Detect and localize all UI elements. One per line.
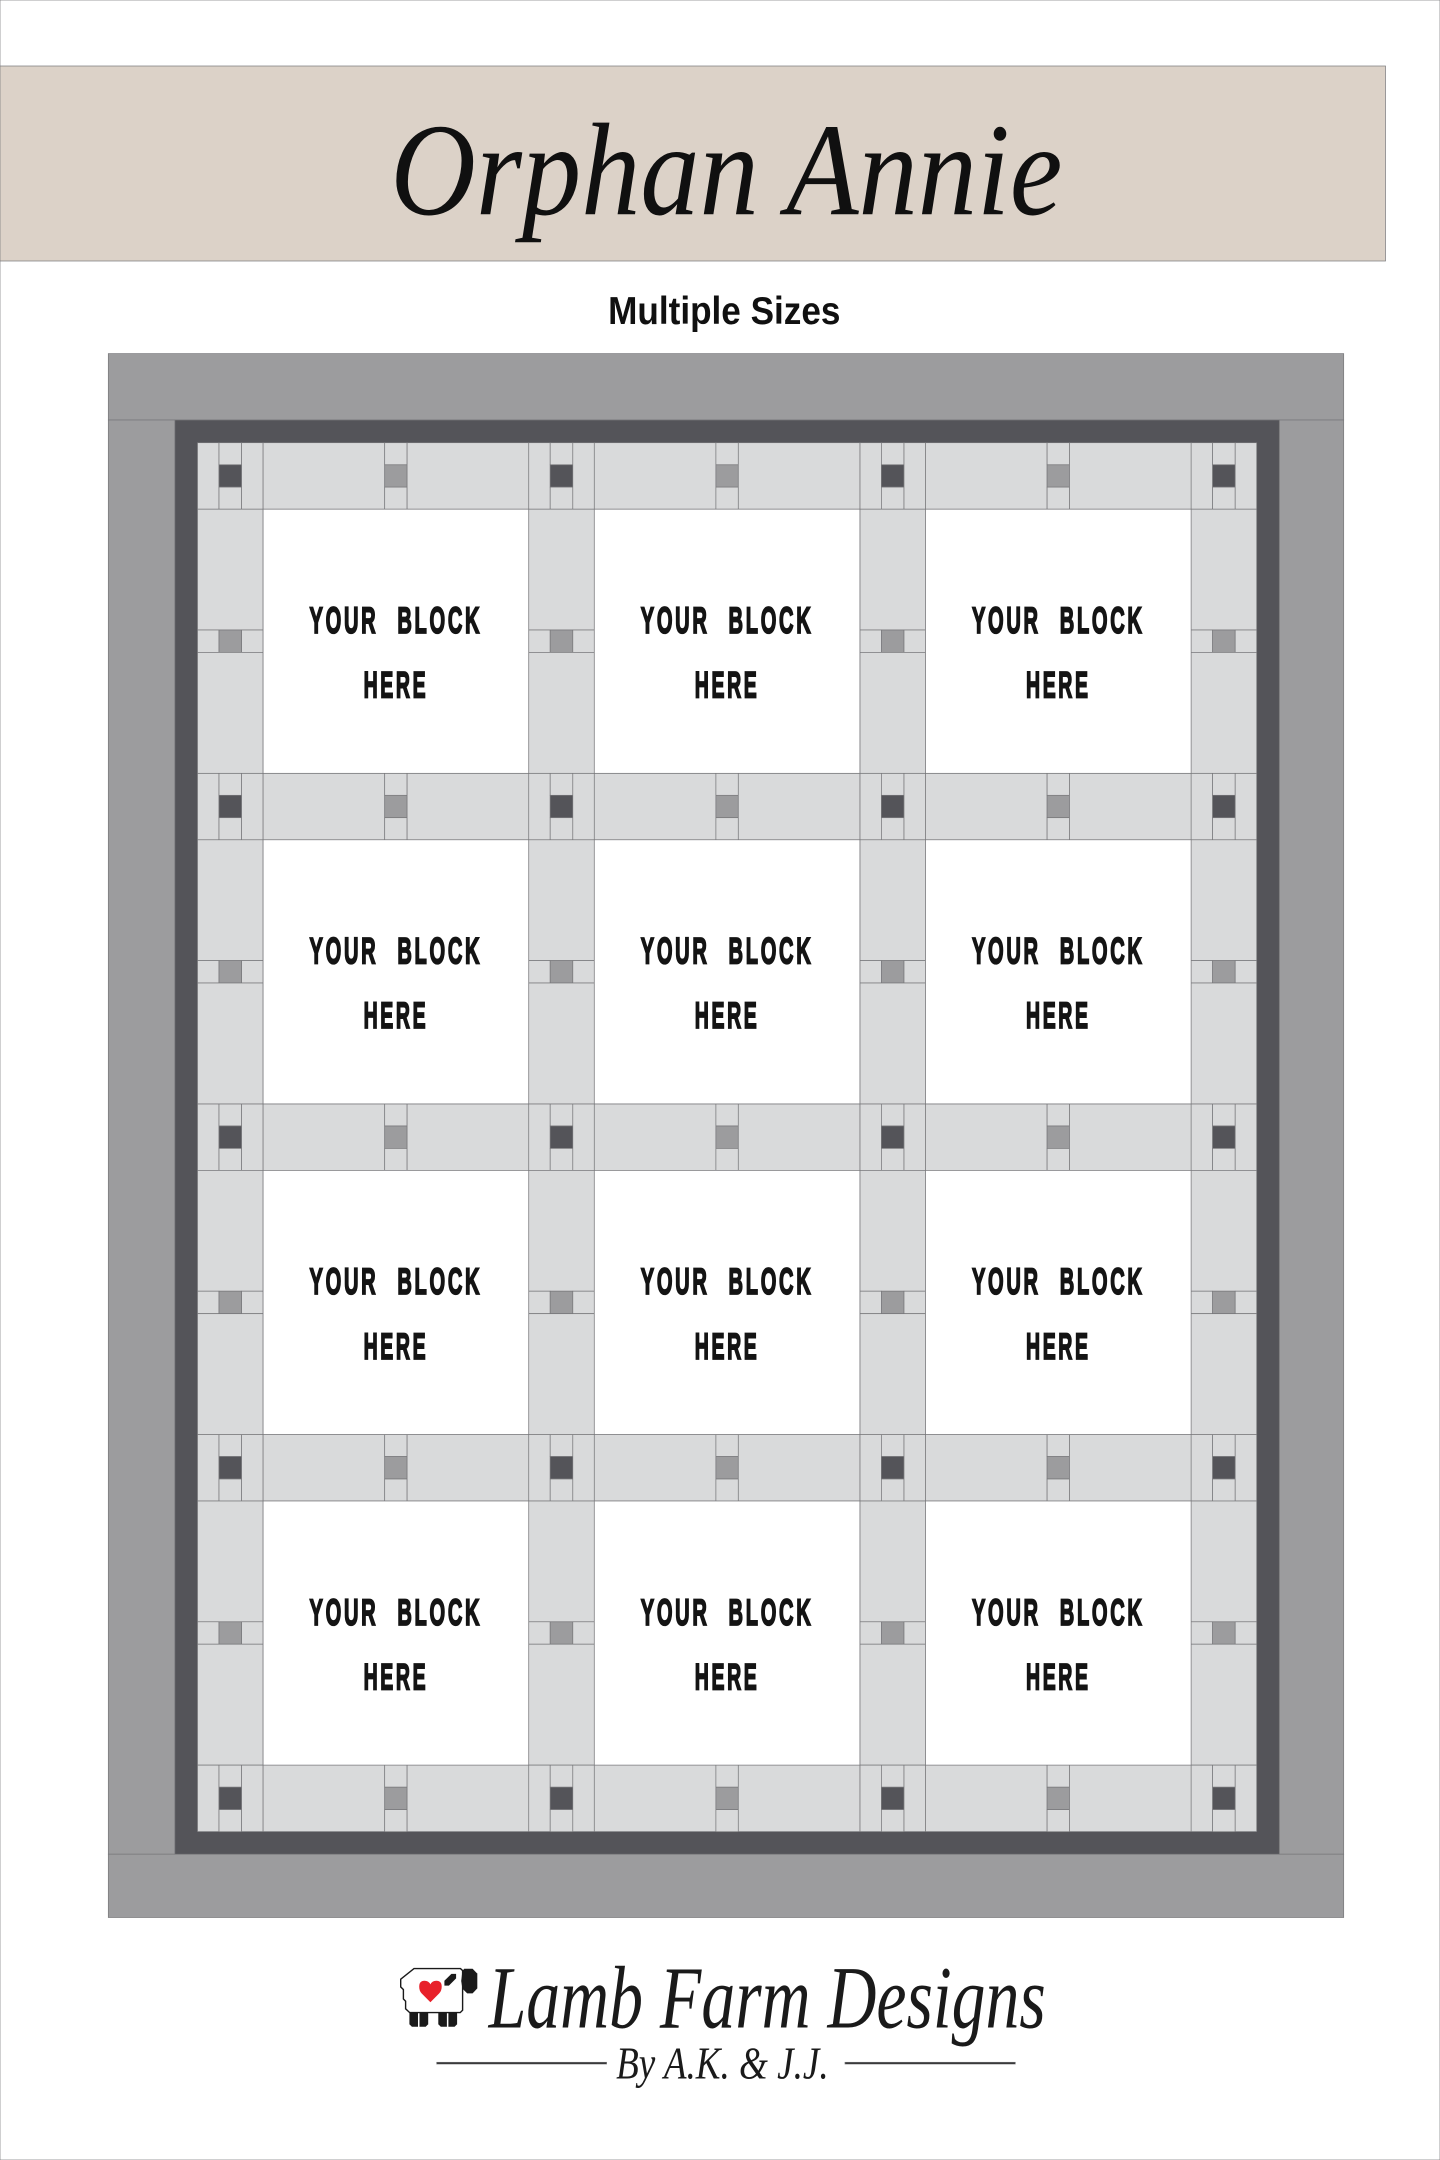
svg-text:YOUR BLOCK: YOUR BLOCK (310, 930, 483, 972)
svg-text:YOUR BLOCK: YOUR BLOCK (641, 1591, 814, 1633)
svg-text:Orphan Annie: Orphan Annie (390, 96, 1062, 243)
svg-text:HERE: HERE (695, 994, 760, 1036)
svg-text:HERE: HERE (1026, 1655, 1091, 1697)
svg-text:HERE: HERE (695, 1655, 760, 1697)
svg-text:YOUR BLOCK: YOUR BLOCK (972, 599, 1145, 641)
svg-text:YOUR BLOCK: YOUR BLOCK (310, 599, 483, 641)
svg-text:HERE: HERE (1026, 994, 1091, 1036)
svg-text:Multiple Sizes: Multiple Sizes (608, 290, 840, 333)
svg-text:YOUR BLOCK: YOUR BLOCK (972, 930, 1145, 972)
svg-text:HERE: HERE (695, 664, 760, 706)
svg-text:YOUR BLOCK: YOUR BLOCK (972, 1260, 1145, 1302)
svg-text:YOUR BLOCK: YOUR BLOCK (972, 1591, 1145, 1633)
svg-text:By A.K. & J.J.: By A.K. & J.J. (616, 2037, 829, 2088)
svg-text:HERE: HERE (364, 1325, 429, 1367)
svg-text:YOUR BLOCK: YOUR BLOCK (310, 1591, 483, 1633)
svg-text:HERE: HERE (364, 994, 429, 1036)
svg-text:YOUR BLOCK: YOUR BLOCK (641, 930, 814, 972)
svg-text:HERE: HERE (1026, 664, 1091, 706)
svg-text:HERE: HERE (695, 1325, 760, 1367)
svg-text:YOUR BLOCK: YOUR BLOCK (641, 1260, 814, 1302)
svg-text:HERE: HERE (1026, 1325, 1091, 1367)
svg-text:HERE: HERE (364, 664, 429, 706)
svg-text:Lamb Farm Designs: Lamb Farm Designs (487, 1949, 1046, 2047)
svg-text:YOUR BLOCK: YOUR BLOCK (310, 1260, 483, 1302)
svg-text:YOUR BLOCK: YOUR BLOCK (641, 599, 814, 641)
svg-text:HERE: HERE (364, 1655, 429, 1697)
